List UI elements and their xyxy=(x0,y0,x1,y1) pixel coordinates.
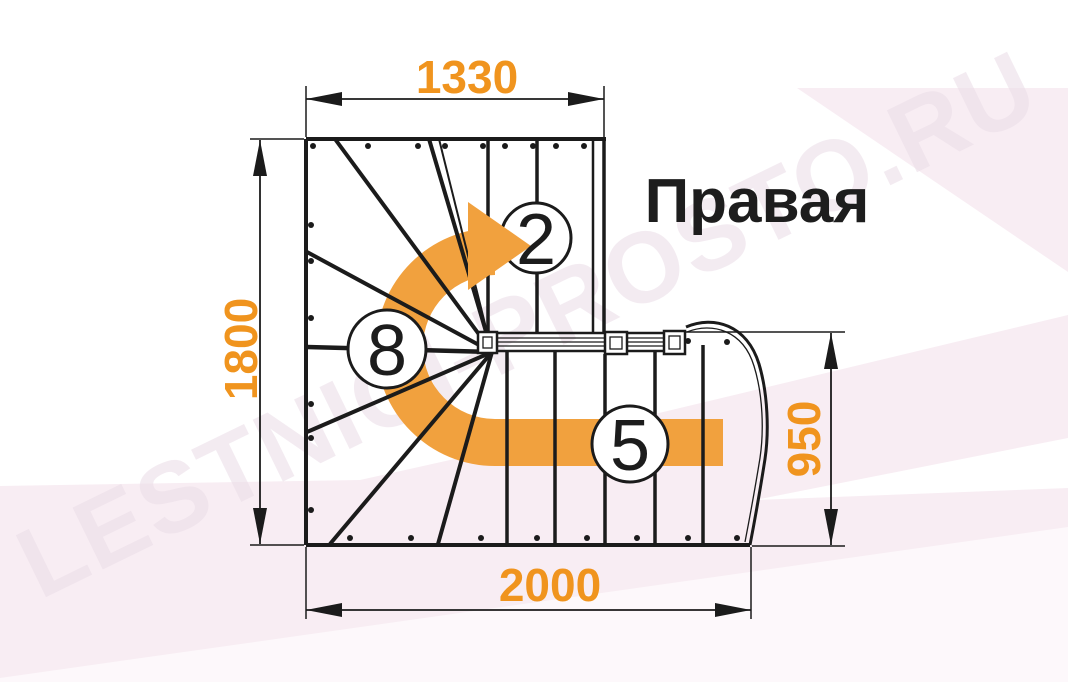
step-count-winder: 8 xyxy=(367,311,407,391)
dimension-width-bottom: 2000 xyxy=(499,559,601,611)
dimension-height-right: 950 xyxy=(778,401,830,478)
staircase-plan-drawing: LESTNICI-PROSTO.RU xyxy=(0,0,1068,682)
dimension-height-left: 1800 xyxy=(215,298,267,400)
dimension-width-top: 1330 xyxy=(416,51,518,103)
orientation-label: Правая xyxy=(645,167,870,236)
step-count-lower-flight: 5 xyxy=(610,406,650,486)
staircase-plan-page: LESTNICI-PROSTO.RU xyxy=(0,0,1068,682)
step-count-upper-flight: 2 xyxy=(516,200,556,280)
